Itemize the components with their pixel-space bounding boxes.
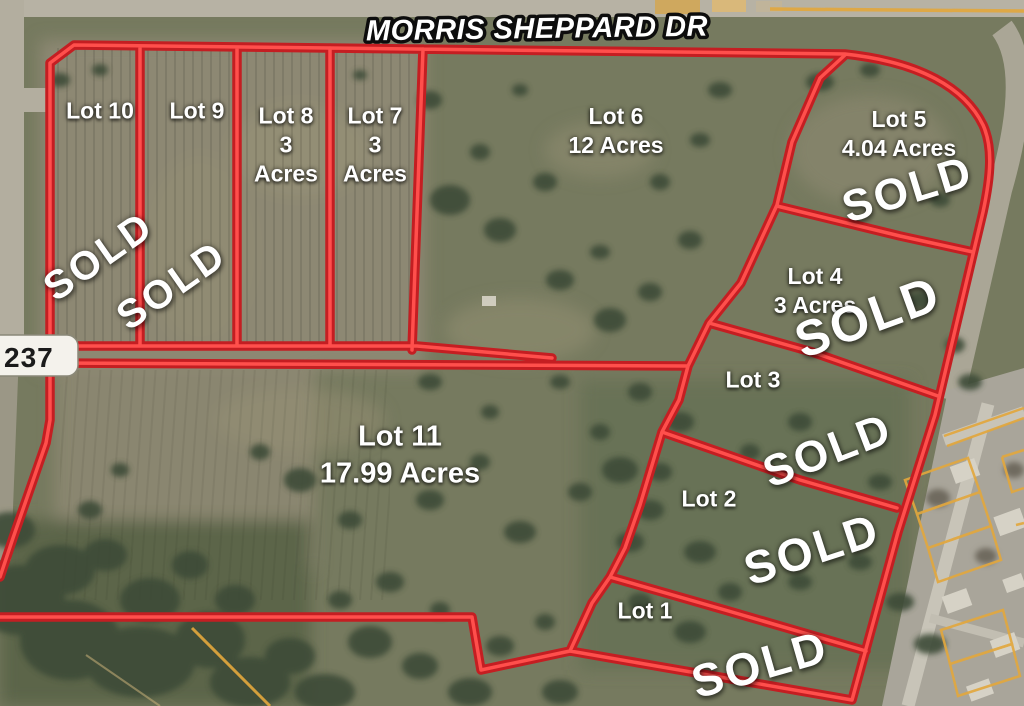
satellite-map-image: 237 MORRIS SHEPPARD DR xyxy=(0,0,1024,706)
plat-map: 237 MORRIS SHEPPARD DR Lot 10 Lot 9 Lot … xyxy=(0,0,1024,706)
road-name-label: MORRIS SHEPPARD DR xyxy=(366,11,708,48)
route-237-text: 237 xyxy=(4,342,54,373)
route-237-sign: 237 xyxy=(0,335,78,376)
